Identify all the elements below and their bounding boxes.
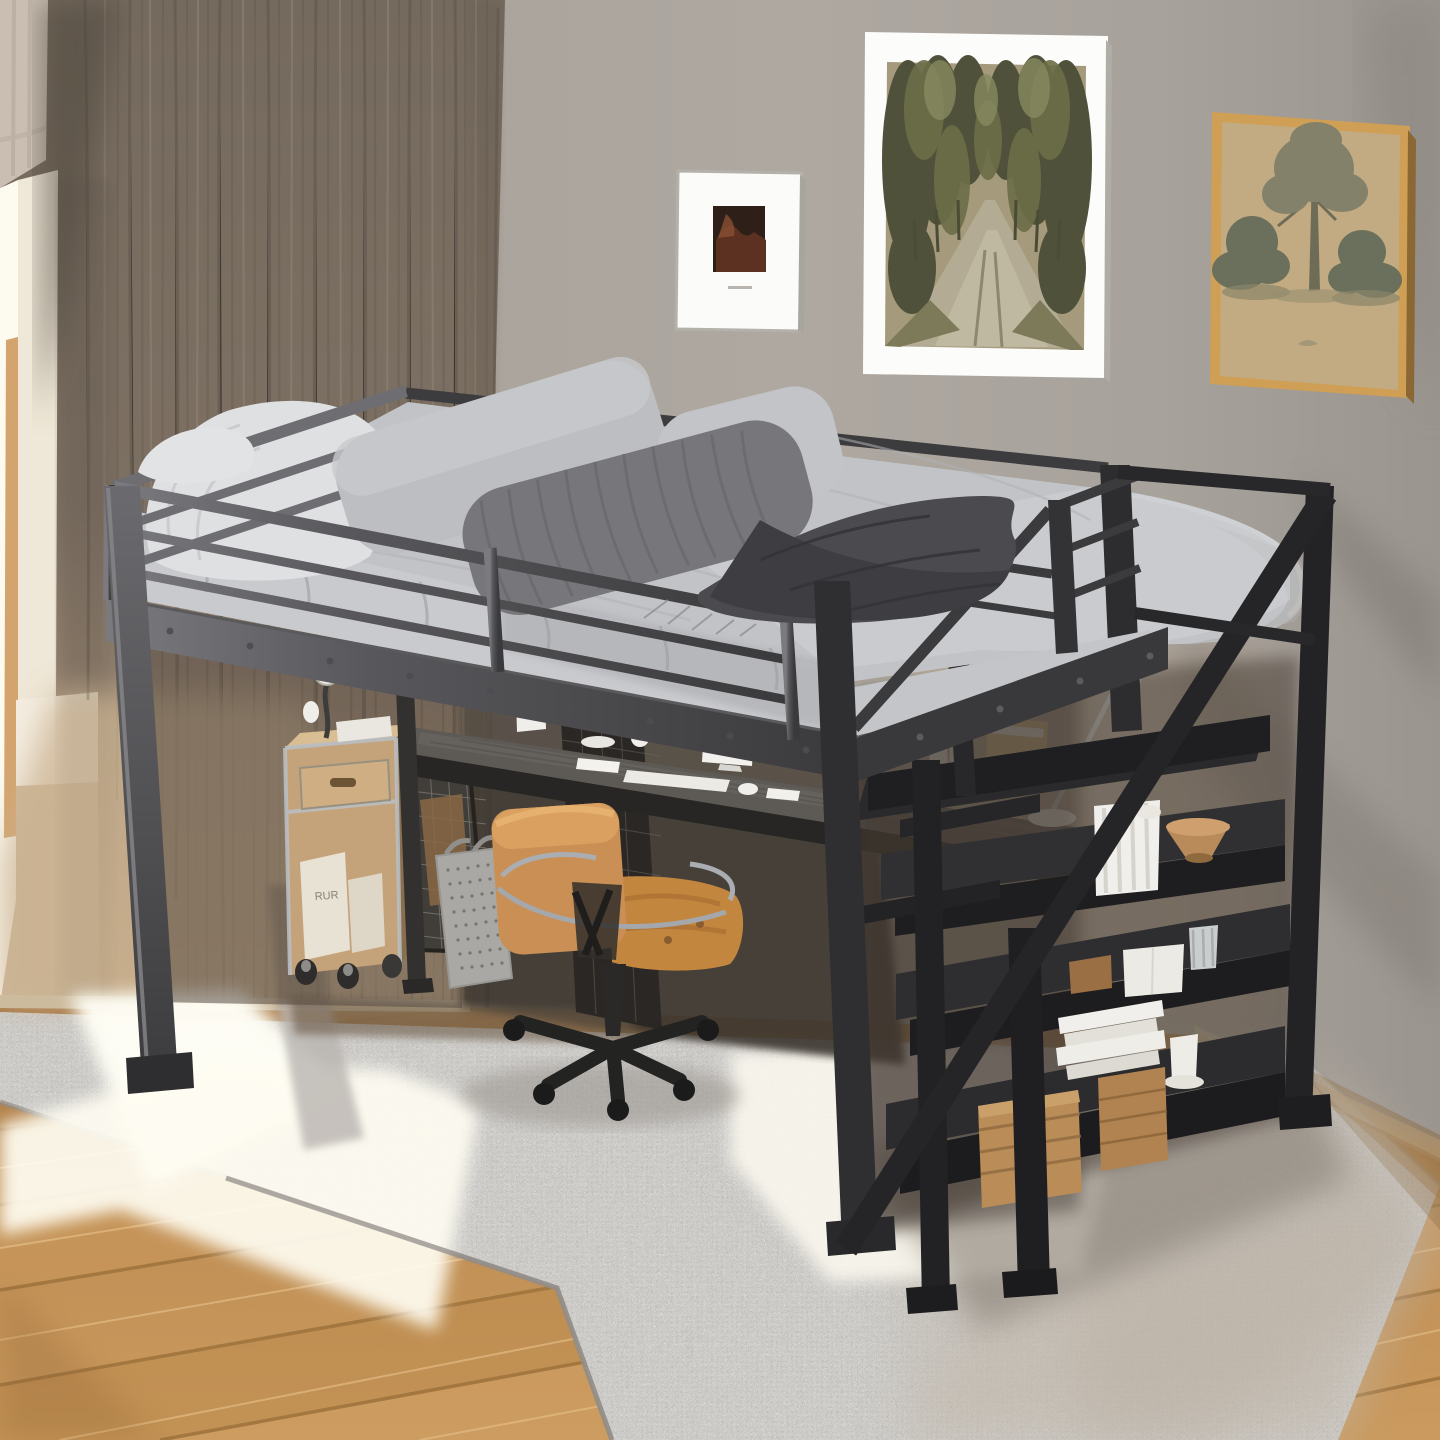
svg-text:RUR: RUR [314, 889, 339, 903]
